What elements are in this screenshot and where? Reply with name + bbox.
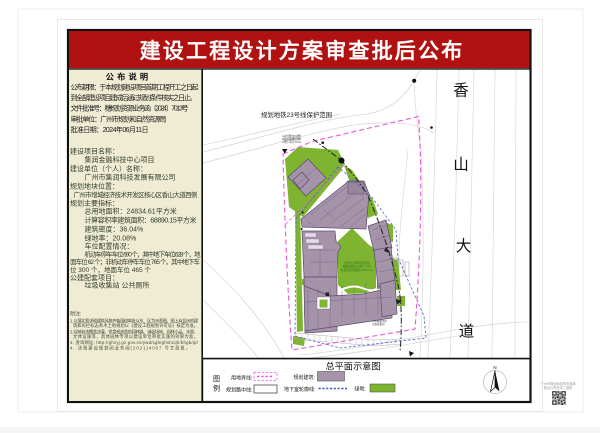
svg-text:建设项目名称：: 建设项目名称： bbox=[70, 147, 119, 156]
svg-text:总平面示意图: 总平面示意图 bbox=[325, 361, 380, 372]
svg-text:筑和有栏标志条术土地规划以《建设工程规划许可证》核定为准。: 筑和有栏标志条术土地规划以《建设工程规划许可证》核定为准。 bbox=[73, 322, 198, 329]
svg-text:山: 山 bbox=[453, 156, 469, 174]
svg-text:垃圾收集站 公共厕所: 垃圾收集站 公共厕所 bbox=[85, 281, 150, 290]
svg-text:用地界线:: 用地界线: bbox=[231, 375, 252, 382]
svg-text:建设工程设计方案审查批后公布: 建设工程设计方案审查批后公布 bbox=[140, 39, 465, 63]
svg-text:车位配置情况：: 车位配置情况： bbox=[85, 242, 134, 251]
svg-text:位 300 个，地面车位 465 个: 位 300 个，地面车位 465 个 bbox=[70, 265, 151, 274]
svg-text:图: 图 bbox=[213, 375, 220, 383]
svg-text:公布说明: 公布说明 bbox=[106, 72, 152, 82]
svg-text:绿地:: 绿地: bbox=[355, 386, 366, 393]
svg-text:总用地面积：24834.61平方米: 总用地面积：24834.61平方米 bbox=[85, 207, 177, 216]
svg-text:建设单位（个人）名称：: 建设单位（个人）名称： bbox=[70, 164, 147, 173]
svg-text:公建配套项目：: 公建配套项目： bbox=[70, 273, 119, 282]
svg-text:规划建筑:: 规划建筑: bbox=[294, 374, 315, 381]
svg-text:集润金融科技中心项目: 集润金融科技中心项目 bbox=[85, 155, 155, 164]
svg-text:计算容积率建筑面积：68890.15平方米: 计算容积率建筑面积：68890.15平方米 bbox=[85, 216, 197, 225]
svg-text:例: 例 bbox=[213, 384, 220, 393]
svg-text:批准日期：2024年06月11日: 批准日期：2024年06月11日 bbox=[71, 125, 149, 134]
svg-text:建筑密度：36.04%: 建筑密度：36.04% bbox=[85, 225, 144, 234]
svg-text:规划地块位置：: 规划地块位置： bbox=[70, 182, 119, 191]
svg-text:文体设施等，具体园林专项以建设单位审批实施的效果为准。: 文体设施等，具体园林专项以建设单位审批实施的效果为准。 bbox=[73, 333, 198, 340]
svg-text:N: N bbox=[493, 365, 496, 370]
svg-text:审批单位：广州市规划和自然资源局: 审批单位：广州市规划和自然资源局 bbox=[71, 115, 167, 124]
svg-text:广州市增城经济技术开发区核心区香山大道西侧: 广州市增城经济技术开发区核心区香山大道西侧 bbox=[74, 190, 198, 199]
svg-text:规划路中线:: 规划路中线: bbox=[226, 387, 252, 394]
svg-text:香: 香 bbox=[453, 82, 469, 100]
svg-text:垃圾收集站: 垃圾收集站 bbox=[372, 322, 385, 326]
svg-text:装配式建筑面积 35400 m²: 装配式建筑面积 35400 m² bbox=[341, 268, 373, 272]
svg-text:3 地下车库 ±0.00: 3 地下车库 ±0.00 bbox=[282, 140, 302, 144]
svg-text:道: 道 bbox=[459, 323, 475, 341]
svg-text:4. 法规建设规划函业务函(2021)4007 号文批复。: 4. 法规建设规划函业务函(2021)4007 号文批复。 bbox=[70, 345, 190, 352]
svg-text:机动车停车车位 690 个，其中地下车位628 个，地: 机动车停车车位 690 个，其中地下车位628 个，地 bbox=[85, 250, 202, 259]
svg-text:地下室轮廓线:: 地下室轮廓线: bbox=[284, 386, 315, 393]
svg-text:面车位 62 个；非机动车停车车位 765 个，其中地下车: 面车位 62 个；非机动车停车车位 765 个，其中地下车 bbox=[70, 257, 201, 266]
svg-text:规划主要指标：: 规划主要指标： bbox=[70, 199, 119, 208]
svg-text:批后公布查询二维码: 批后公布查询二维码 bbox=[544, 385, 573, 390]
svg-text:大: 大 bbox=[456, 237, 472, 255]
svg-text:文件批准号：穗规划资源业务函〔2024〕7013号: 文件批准号：穗规划资源业务函〔2024〕7013号 bbox=[71, 104, 189, 113]
svg-text:公布期限：于本规划建设项目首期工程开工之日起: 公布期限：于本规划建设项目首期工程开工之日起 bbox=[71, 83, 199, 92]
svg-text:规划地铁23号线保护范围: 规划地铁23号线保护范围 bbox=[261, 110, 332, 119]
svg-text:广州市集润科技发展有限公司: 广州市集润科技发展有限公司 bbox=[85, 173, 176, 182]
svg-text:附注:: 附注: bbox=[70, 311, 81, 318]
svg-text:绿地率：20.08%: 绿地率：20.08% bbox=[85, 234, 137, 243]
svg-text:到全部建设项目建成后通过规划条件核实之日止。: 到全部建设项目建成后通过规划条件核实之日止。 bbox=[71, 93, 197, 102]
